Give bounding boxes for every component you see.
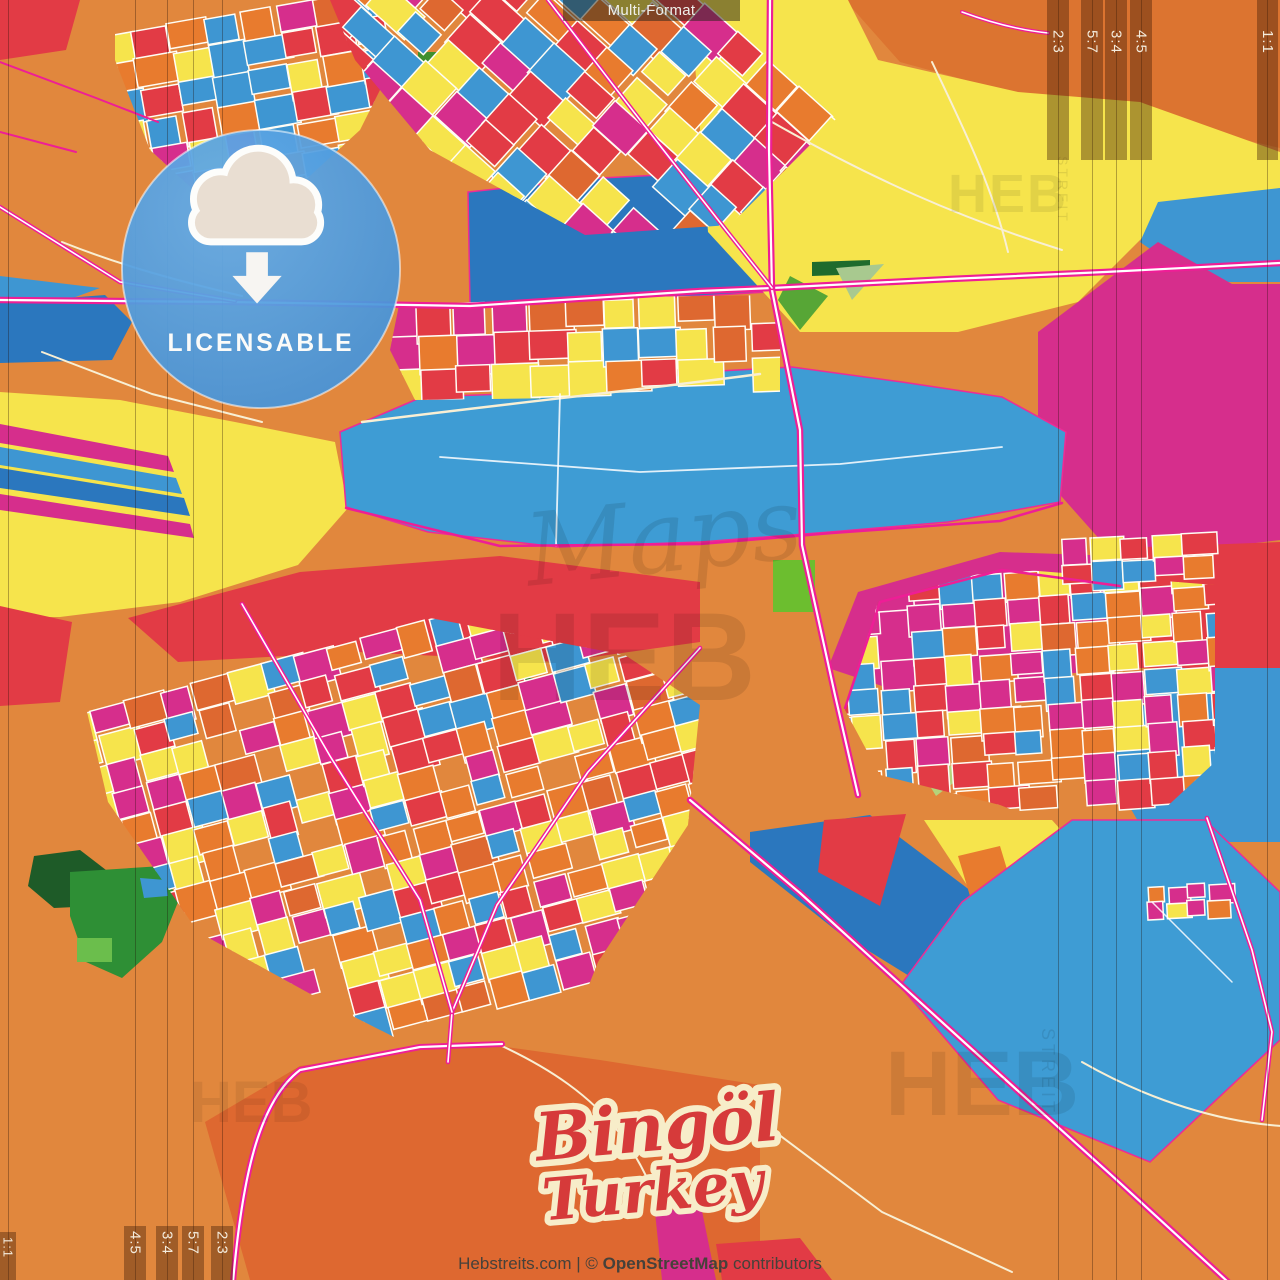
ratio-label: 1:1 xyxy=(1259,30,1276,160)
city-title: Bingöl Turkey xyxy=(530,1078,787,1235)
ratio-bar-1-1: 1:1 xyxy=(1257,0,1278,160)
ratio-label: 3:4 xyxy=(1108,30,1125,160)
watermark-heb-center: HEB xyxy=(492,588,756,727)
ratio-bar-3-4: 3:4 xyxy=(1105,0,1127,160)
crop-line xyxy=(1092,0,1093,1280)
ratio-label: 5:7 xyxy=(1084,30,1101,160)
attribution-osm: OpenStreetMap xyxy=(603,1254,729,1273)
format-chip: Multi-Format xyxy=(563,0,740,21)
badge-label: LICENSABLE xyxy=(167,330,354,357)
crop-line xyxy=(8,0,9,1280)
ratio-label: 4:5 xyxy=(1133,30,1150,160)
attribution: Hebstreits.com | © OpenStreetMap contrib… xyxy=(0,1254,1280,1274)
crop-line xyxy=(1116,0,1117,1280)
mosaic-field xyxy=(1146,882,1236,923)
crop-line xyxy=(1058,0,1059,1280)
licensable-badge: LICENSABLE xyxy=(118,126,404,412)
region-red-west xyxy=(0,606,72,706)
watermark-streit-bottomright: STREIT xyxy=(1038,1028,1058,1116)
watermark-heb-topright: HEB xyxy=(948,164,1068,224)
licensable-badge-graphic: LICENSABLE xyxy=(118,126,404,412)
watermark-heb-bottomleft: HEB xyxy=(190,1070,312,1135)
region-darkblue-left-edge xyxy=(0,295,132,363)
attribution-suffix: contributors xyxy=(733,1254,822,1273)
crop-line xyxy=(1141,0,1142,1280)
attribution-site: Hebstreits.com | © xyxy=(458,1254,598,1273)
ratio-label: 2:3 xyxy=(1050,30,1067,160)
crop-line xyxy=(1267,0,1268,1280)
park-light-green xyxy=(77,938,112,962)
ratio-bar-5-7: 5:7 xyxy=(1081,0,1103,160)
ratio-bar-4-5: 4:5 xyxy=(1130,0,1152,160)
map-poster: HEB STREIT Maps HEB HEB STREIT HEB Bingö… xyxy=(0,0,1280,1280)
ratio-bar-2-3: 2:3 xyxy=(1047,0,1069,160)
